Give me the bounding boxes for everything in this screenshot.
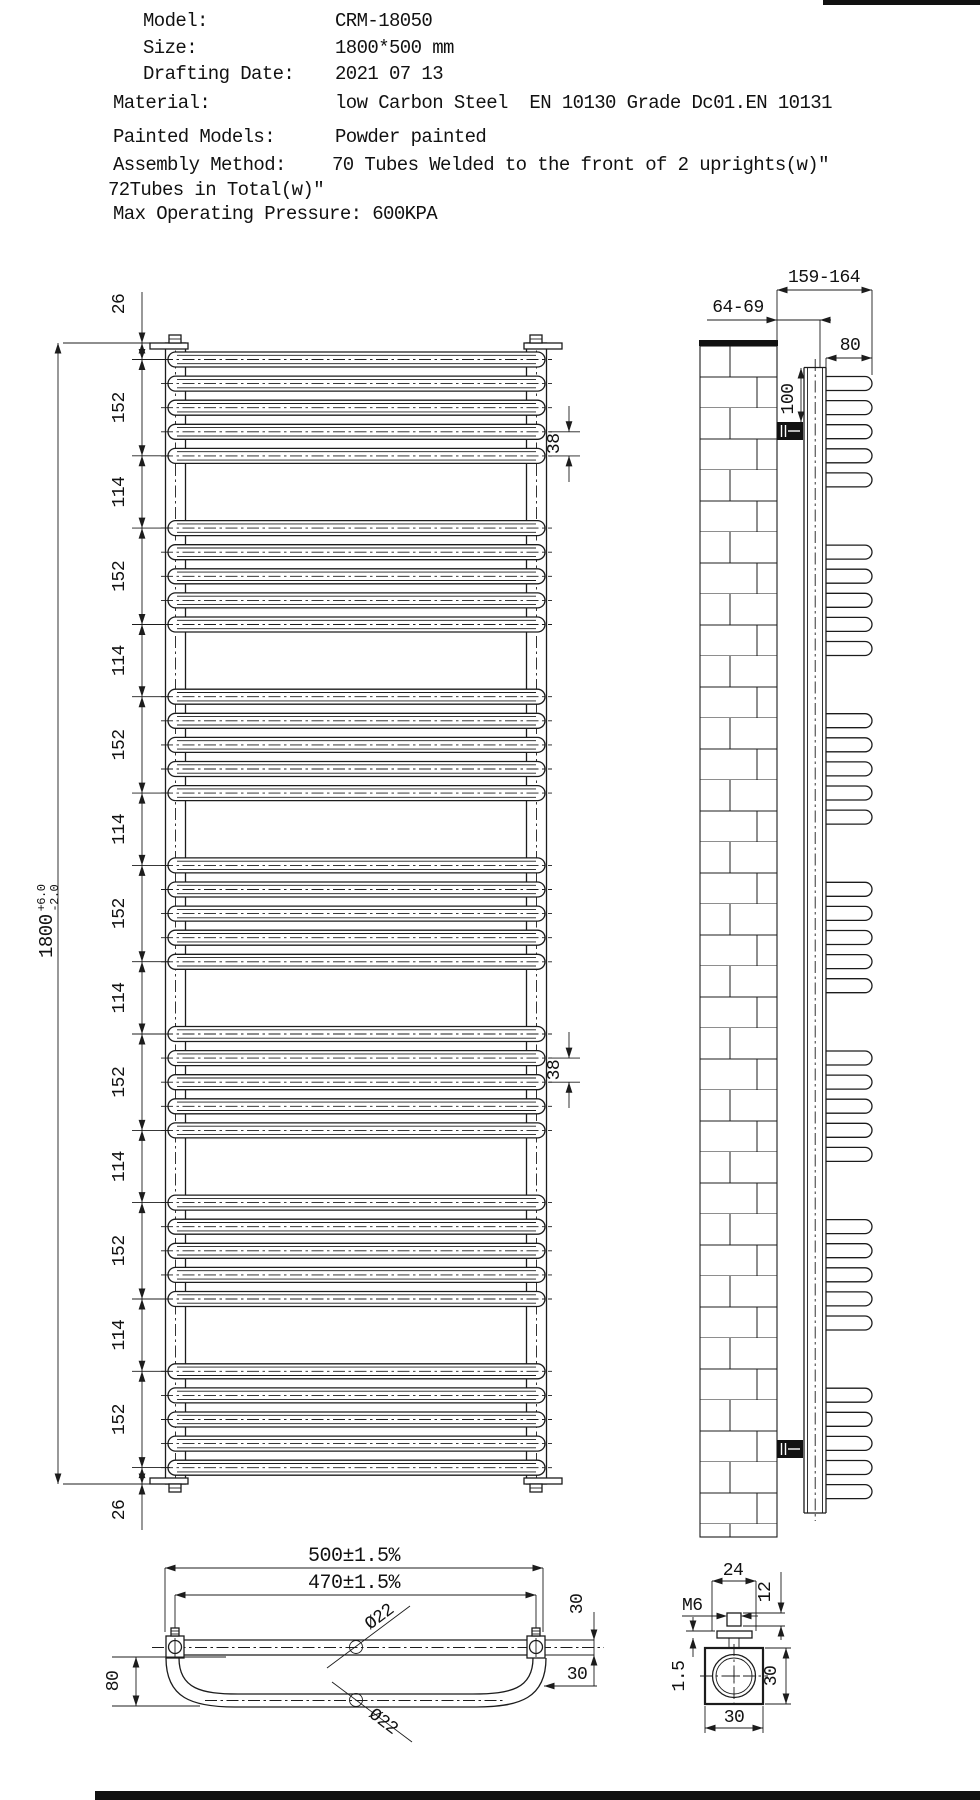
svg-text:30: 30 (724, 1708, 745, 1728)
dim-chain-label: 26 (110, 294, 130, 315)
dim-chain-label: 152 (110, 898, 130, 929)
drawing-page: Model: CRM-18050 Size: 1800*500 mm Draft… (0, 0, 980, 1800)
dim-chain-label: 152 (110, 1235, 130, 1266)
svg-text:80: 80 (840, 336, 861, 356)
dim-overall-height: 1800+6.0-2.0 (35, 884, 62, 958)
dim-thread: M6 (682, 1596, 758, 1619)
dim-chain-label: 152 (110, 729, 130, 760)
dim-chain-label: 114 (110, 477, 130, 508)
svg-text:24: 24 (723, 1561, 744, 1581)
svg-text:M6: M6 (682, 1596, 703, 1616)
dim-chain-label: 114 (110, 1320, 130, 1351)
end-block-right (527, 1628, 545, 1658)
dim-pitch-top: 38 (545, 406, 580, 482)
front-view: 1800+6.0-2.0 (35, 292, 580, 1530)
dim-end-offset: 30 (544, 1665, 597, 1689)
detail-view: 24 M6 (670, 1561, 791, 1733)
dim-chain-label: 114 (110, 1151, 130, 1182)
stud-profile (717, 1613, 752, 1648)
block-face (700, 1644, 768, 1708)
dim-chain: 26 152 114 152 114 152 114 152 114 152 1… (110, 292, 170, 1530)
dim-chain-label: 114 (110, 645, 130, 676)
svg-text:100: 100 (779, 384, 799, 415)
side-view: 159-164 64-69 80 100 (699, 268, 872, 1537)
svg-text:30: 30 (568, 1594, 588, 1615)
wall-section (700, 346, 777, 1537)
dim-tube-dia-loop: Ø22 (332, 1682, 412, 1742)
svg-text:Ø22: Ø22 (362, 1600, 399, 1635)
dim-chain-label: 152 (110, 561, 130, 592)
dim-block-height: 30 (762, 1648, 791, 1704)
wall-top-edge (699, 340, 778, 346)
dim-chain-label: 26 (110, 1500, 130, 1521)
sheet-edge-bottom (95, 1791, 980, 1800)
end-block-left (166, 1628, 184, 1658)
svg-text:500±1.5%: 500±1.5% (308, 1545, 402, 1568)
wall-bracket-top (777, 422, 803, 440)
svg-text:38: 38 (545, 433, 565, 454)
dim-pitch-mid: 38 (545, 1032, 580, 1108)
svg-text:12: 12 (756, 1582, 776, 1603)
dim-chain-label: 152 (110, 1067, 130, 1098)
bottom-view: Ø22 Ø22 500±1.5% 470±1.5% (104, 1545, 604, 1742)
dim-tube-depth: 80 (826, 336, 872, 372)
svg-text:1.5: 1.5 (670, 1661, 690, 1692)
sheet-edge-top (823, 0, 980, 5)
dim-hole-centers: 470±1.5% (175, 1572, 536, 1628)
technical-drawing: 1800+6.0-2.0 (0, 0, 980, 1800)
dim-chain-label: 114 (110, 814, 130, 845)
dim-loop-depth: 80 (104, 1657, 226, 1706)
front-tubes (161, 352, 552, 1475)
svg-text:30: 30 (567, 1665, 588, 1685)
dim-chain-label: 114 (110, 982, 130, 1013)
dim-overall-depth: 159-164 (777, 268, 872, 375)
dim-bracket-drop: 100 (779, 368, 804, 422)
svg-text:80: 80 (104, 1671, 124, 1692)
side-tubes (826, 377, 872, 1499)
svg-text:64-69: 64-69 (712, 298, 764, 318)
side-upright (804, 359, 826, 1521)
svg-text:159-164: 159-164 (788, 268, 860, 288)
dim-block-width: 30 (705, 1706, 763, 1733)
wall-bracket-bottom (777, 1440, 803, 1458)
svg-text:470±1.5%: 470±1.5% (308, 1572, 402, 1595)
dim-chain-label: 152 (110, 392, 130, 423)
dim-tube-dia-top: Ø22 (327, 1600, 410, 1668)
svg-text:30: 30 (762, 1666, 782, 1687)
svg-text:38: 38 (545, 1060, 565, 1081)
dim-chain-label: 152 (110, 1404, 130, 1435)
